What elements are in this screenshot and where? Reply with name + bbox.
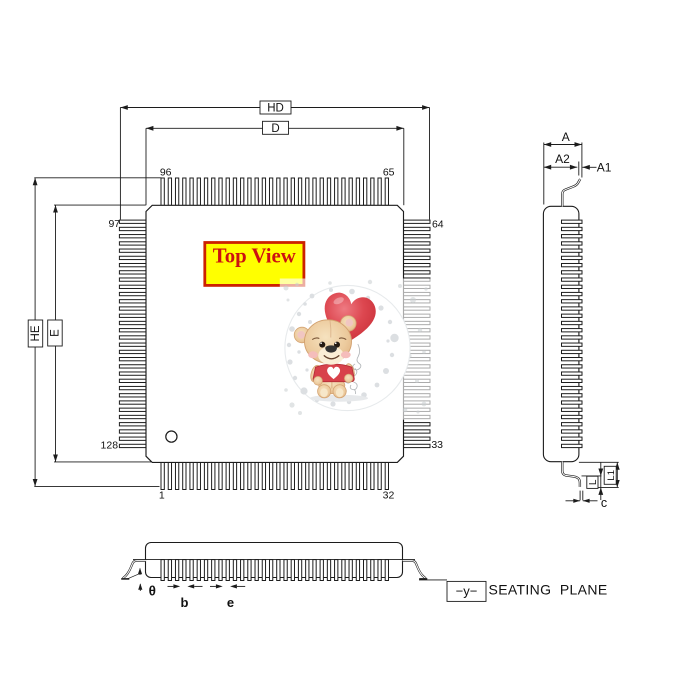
svg-text:D: D	[271, 123, 279, 135]
svg-text:e: e	[227, 595, 234, 610]
svg-text:65: 65	[383, 167, 395, 179]
svg-text:HD: HD	[267, 103, 284, 115]
svg-text:A1: A1	[597, 161, 612, 175]
svg-text:128: 128	[101, 440, 119, 452]
svg-text:−y−: −y−	[456, 583, 478, 598]
svg-text:97: 97	[108, 218, 120, 230]
svg-text:L1: L1	[606, 470, 617, 481]
svg-text:A: A	[562, 130, 570, 144]
svg-text:HE: HE	[30, 325, 42, 341]
svg-text:c: c	[601, 496, 607, 510]
svg-text:L: L	[588, 479, 599, 485]
svg-text:32: 32	[383, 490, 395, 502]
svg-text:96: 96	[160, 167, 172, 179]
svg-text:E: E	[50, 329, 62, 337]
svg-text:A2: A2	[555, 152, 570, 166]
svg-text:b: b	[181, 595, 189, 610]
svg-text:64: 64	[432, 218, 444, 230]
svg-text:SEATING PLANE: SEATING PLANE	[489, 582, 608, 598]
svg-text:Top View: Top View	[213, 245, 296, 268]
svg-text:θ: θ	[149, 583, 156, 598]
svg-text:33: 33	[431, 439, 443, 451]
svg-text:1: 1	[159, 490, 165, 502]
